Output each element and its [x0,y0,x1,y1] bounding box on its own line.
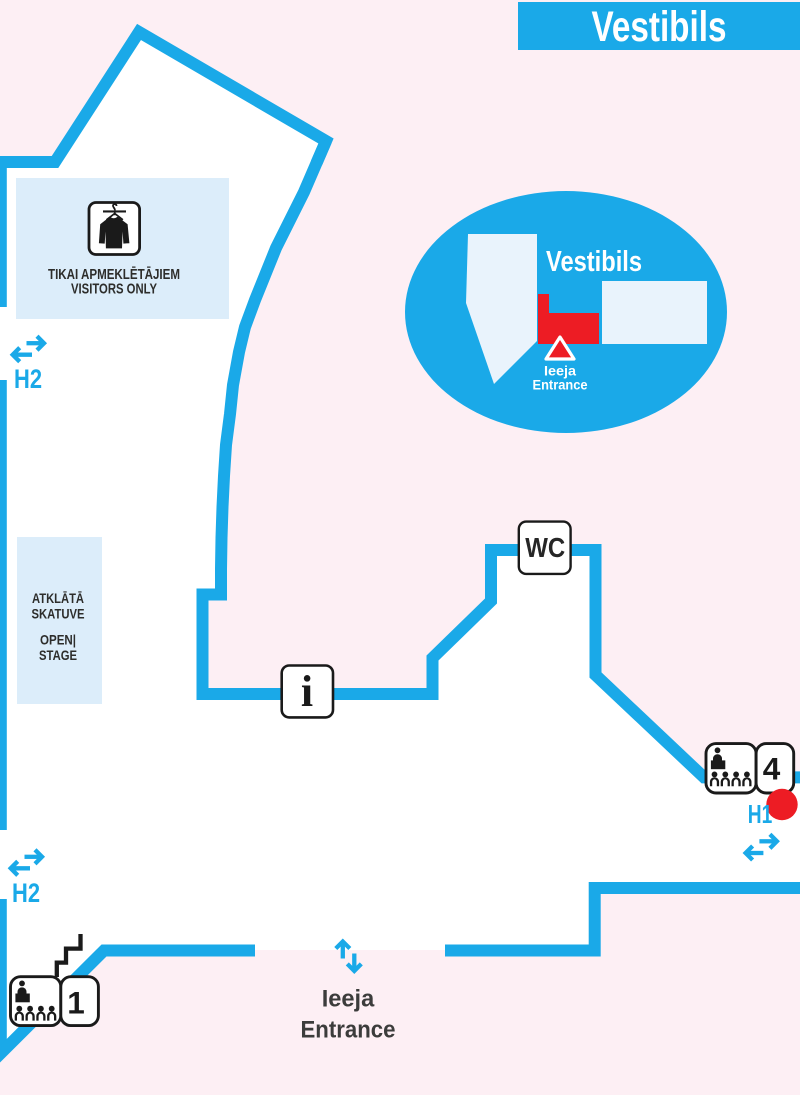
svg-text:Entrance: Entrance [533,377,588,393]
svg-text:VISITORS ONLY: VISITORS ONLY [71,281,157,298]
svg-text:Vestibils: Vestibils [546,246,642,278]
svg-text:Ieeja: Ieeja [322,985,375,1012]
svg-text:4: 4 [763,751,781,787]
svg-text:STAGE: STAGE [39,647,77,663]
svg-text:ATKLĀTĀ: ATKLĀTĀ [32,590,84,606]
svg-text:WC: WC [525,532,565,563]
svg-text:SKATUVE: SKATUVE [32,606,85,622]
svg-text:i: i [301,667,313,716]
svg-text:OPEN|: OPEN| [40,632,76,648]
svg-text:H2: H2 [14,364,42,394]
svg-text:H2: H2 [12,878,40,908]
svg-text:Entrance: Entrance [301,1016,396,1043]
svg-text:Vestibils: Vestibils [592,3,727,51]
svg-text:H1: H1 [748,799,773,829]
svg-text:1: 1 [67,984,85,1020]
